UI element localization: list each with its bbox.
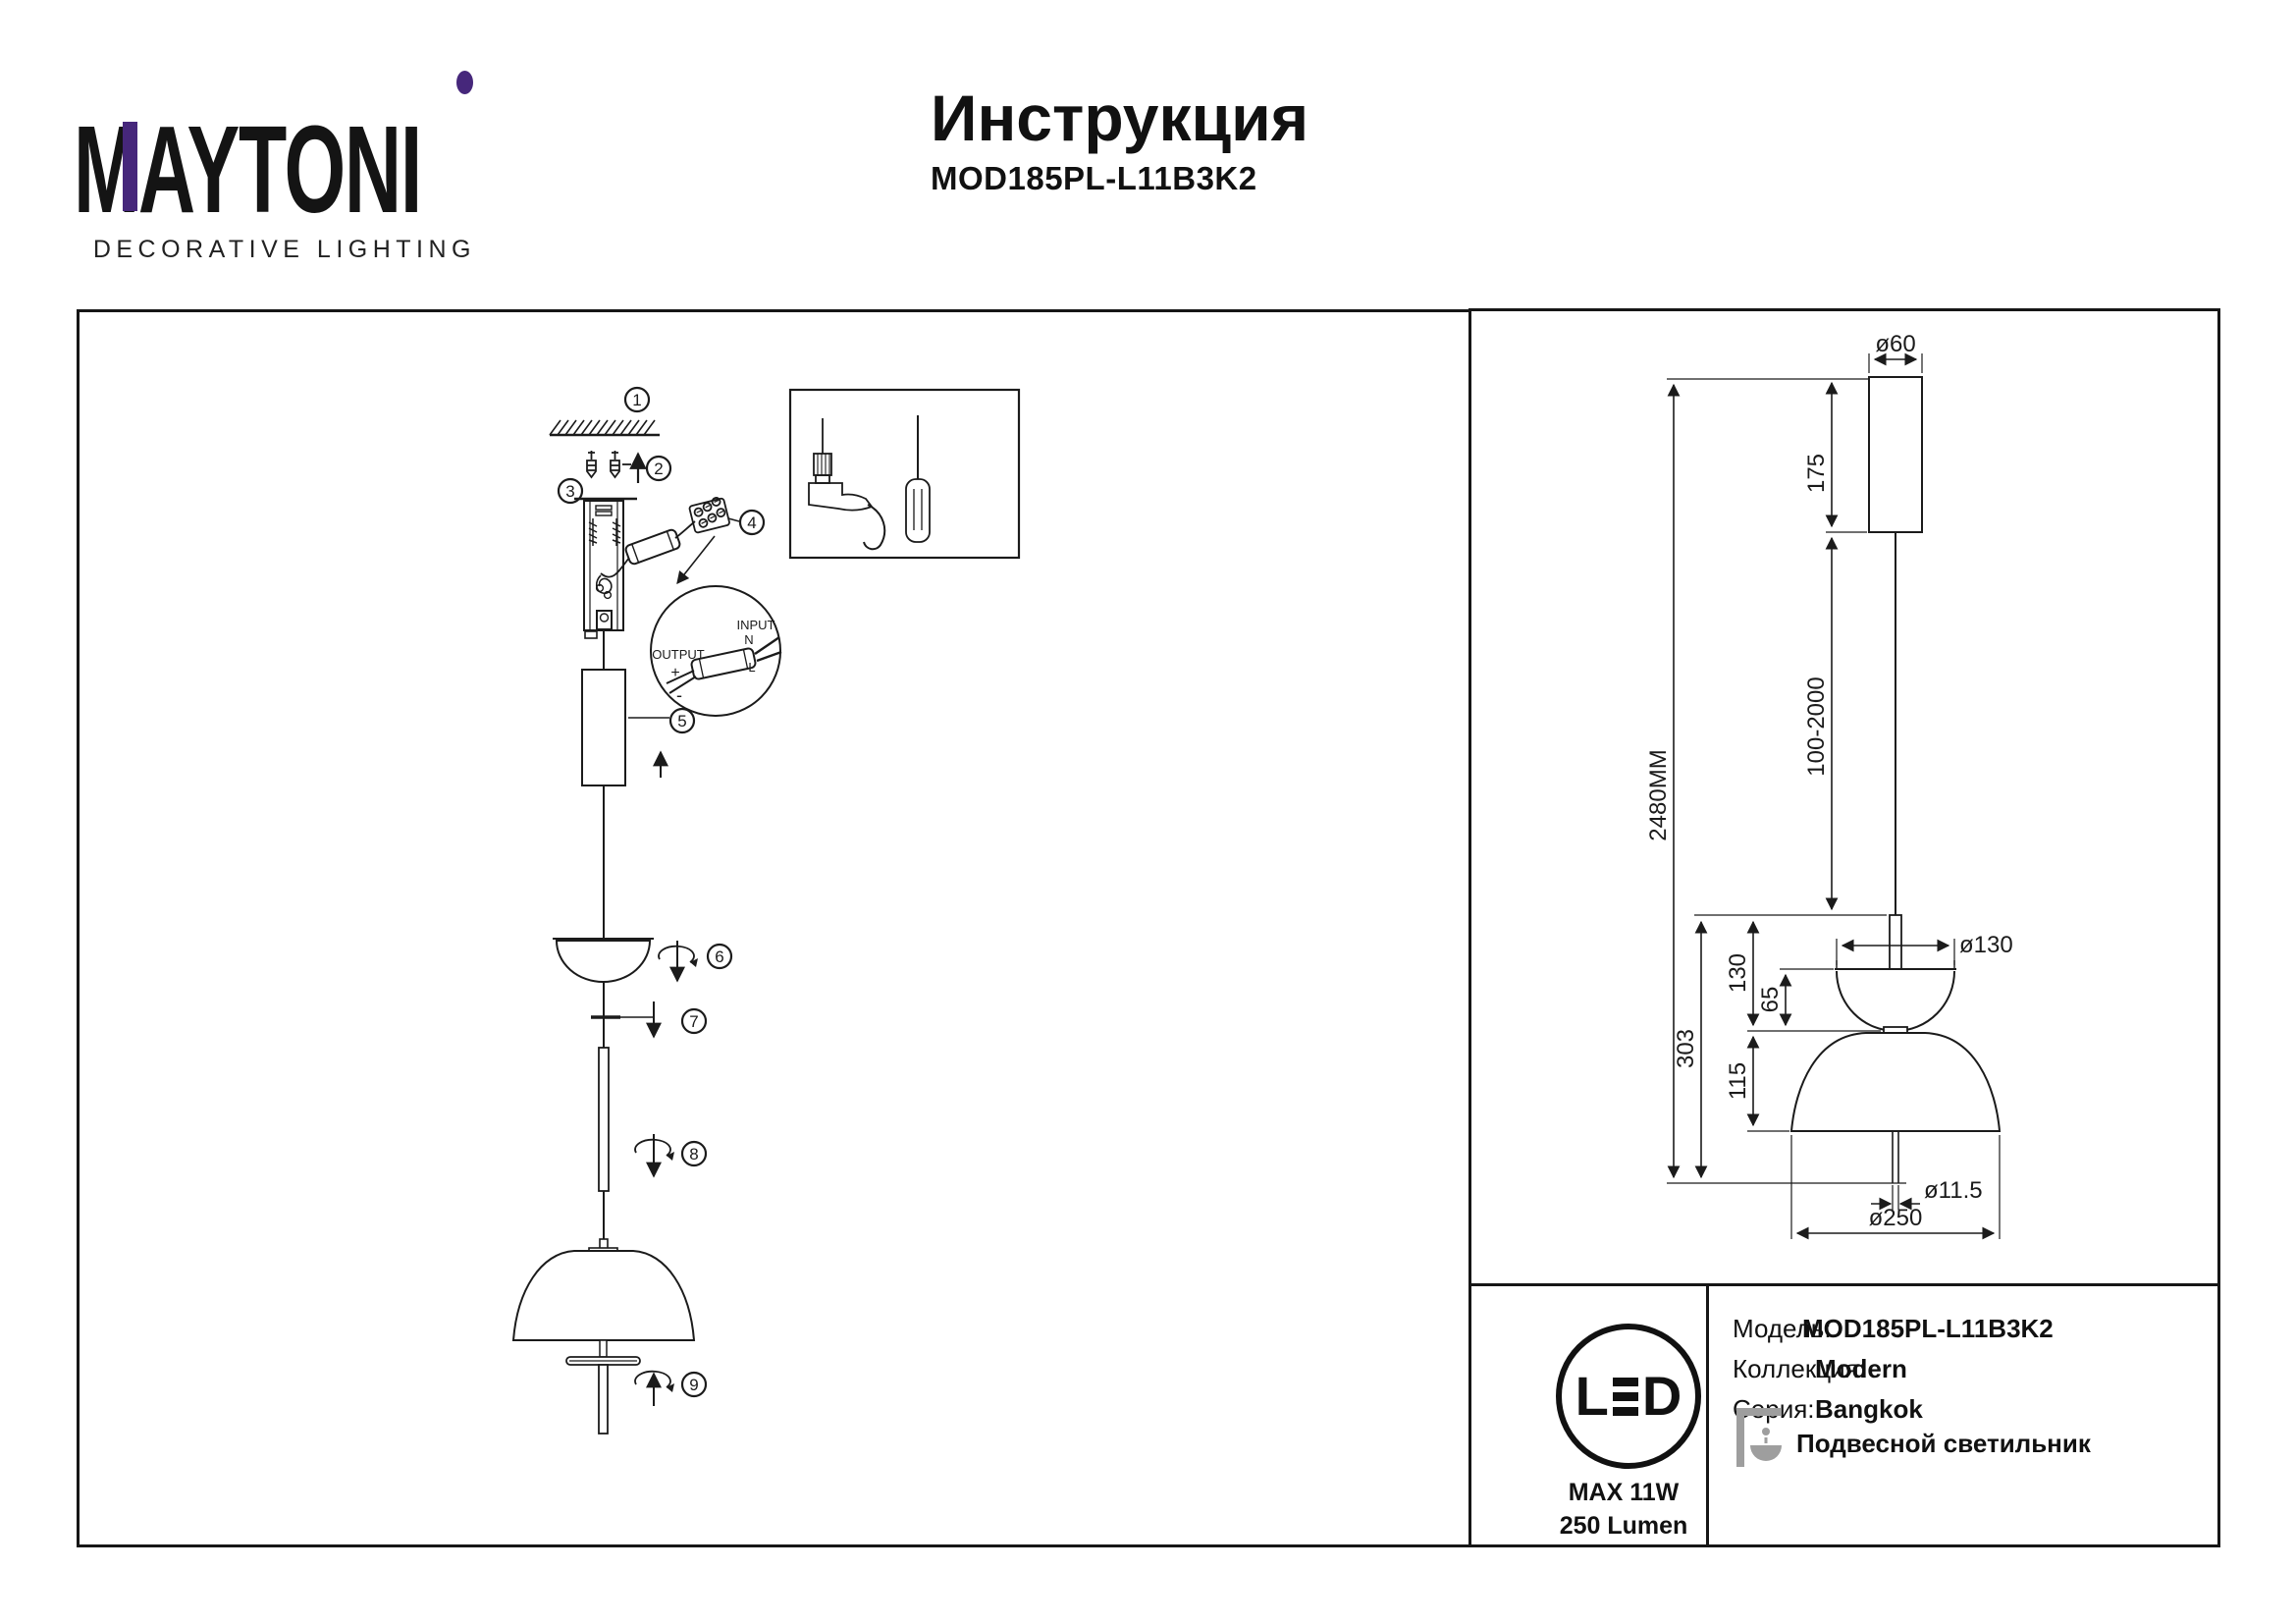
svg-text:2: 2 — [654, 460, 663, 478]
input-label: INPUT — [737, 618, 775, 632]
dim-130: 130 — [1725, 953, 1751, 993]
logo-purple-dot — [456, 71, 473, 94]
step-5-badge: 5 — [670, 709, 694, 732]
mounting-bracket — [574, 499, 637, 638]
ceiling-icon — [550, 420, 660, 435]
step-4-badge: 4 — [740, 511, 764, 534]
collection-value: Modern — [1815, 1354, 1907, 1384]
logo-purple-stem — [123, 122, 137, 211]
led-logo: L D — [1556, 1324, 1701, 1469]
svg-text:4: 4 — [747, 514, 756, 532]
step-9-badge: 9 — [682, 1373, 706, 1396]
upper-bowl — [553, 939, 654, 982]
model-value: MOD185PL-L11B3K2 — [1802, 1314, 2054, 1344]
led-letter-d: D — [1642, 1369, 1682, 1424]
wiring-detail-circle: OUTPUT + - INPUT N L — [651, 586, 781, 716]
stem-rod — [599, 1048, 609, 1191]
dim-65: 65 — [1757, 987, 1784, 1013]
fixture-type: Подвесной светильник — [1796, 1429, 2091, 1459]
svg-text:9: 9 — [689, 1376, 698, 1394]
led-letter-e-bars — [1613, 1378, 1638, 1416]
svg-text:3: 3 — [565, 482, 574, 501]
rod-stub — [600, 1340, 607, 1357]
canopy-cylinder — [582, 670, 625, 785]
svg-text:6: 6 — [715, 947, 723, 966]
svg-text:1: 1 — [632, 391, 641, 409]
step-6-badge: 6 — [708, 945, 731, 968]
leader-step4 — [728, 518, 739, 521]
minus-label: - — [676, 685, 682, 705]
lamp-outline — [1791, 377, 2000, 1183]
max-power: MAX 11W — [1511, 1479, 1736, 1507]
series-value: Bangkok — [1815, 1394, 1923, 1425]
wire-bracket-driver — [601, 558, 629, 577]
dim-total: 2480MM — [1645, 749, 1672, 840]
svg-text:8: 8 — [689, 1145, 698, 1164]
dim-115: 115 — [1725, 1062, 1751, 1100]
led-driver — [624, 528, 681, 565]
pendant-lamp-icon — [1736, 1408, 1786, 1469]
product-info-box: L D MAX 11W 250 Lumen Модель: MOD185PL-L… — [1468, 1283, 2220, 1547]
terminal-block — [688, 496, 729, 533]
output-label: OUTPUT — [652, 647, 705, 662]
tools-box — [790, 390, 1019, 558]
n-label: N — [744, 632, 753, 647]
svg-text:7: 7 — [689, 1012, 698, 1031]
led-letter-l: L — [1575, 1369, 1609, 1424]
led-spec-cell: L D MAX 11W 250 Lumen — [1471, 1286, 1709, 1544]
step-1-badge: 1 — [625, 388, 649, 411]
step-7-badge: 7 — [682, 1009, 706, 1033]
step-2-badge: 2 — [647, 457, 670, 480]
rotate-symbol-8 — [635, 1134, 674, 1176]
wall-anchor-icons — [587, 451, 631, 477]
dim-d250: ø250 — [1869, 1205, 1923, 1231]
assembly-diagram: 1 2 3 — [77, 309, 1471, 1547]
rotate-symbol-6 — [659, 941, 698, 981]
wire-driver-terminal — [675, 521, 695, 538]
step-8-badge: 8 — [682, 1142, 706, 1165]
detail-leader-arrow — [677, 536, 715, 583]
page-title: Инструкция — [931, 84, 1308, 152]
dim-wire: 100-2000 — [1803, 677, 1830, 776]
dome-shade — [513, 1251, 694, 1340]
svg-text:5: 5 — [677, 712, 686, 731]
dim-303: 303 — [1673, 1029, 1699, 1068]
dim-d115: ø11.5 — [1924, 1177, 1983, 1204]
plus-label: + — [670, 665, 679, 681]
rotate-symbol-9 — [635, 1372, 674, 1406]
logo-tagline: DECORATIVE LIGHTING — [74, 236, 476, 264]
dim-d60: ø60 — [1875, 331, 1915, 357]
dim-175: 175 — [1803, 454, 1830, 493]
maytoni-logo: MAYTONI DECORATIVE LIGHTING — [74, 86, 486, 273]
l-label: L — [748, 660, 755, 675]
bottom-rod — [599, 1365, 608, 1434]
diffuser-disc — [566, 1357, 640, 1365]
dim-d130: ø130 — [1959, 932, 2013, 958]
document-header: Инструкция MOD185PL-L11B3K2 — [931, 84, 1308, 197]
model-info-cell: Модель: MOD185PL-L11B3K2 Коллекция: Mode… — [1709, 1286, 2217, 1544]
model-number: MOD185PL-L11B3K2 — [931, 160, 1308, 197]
lumen-value: 250 Lumen — [1511, 1512, 1736, 1541]
